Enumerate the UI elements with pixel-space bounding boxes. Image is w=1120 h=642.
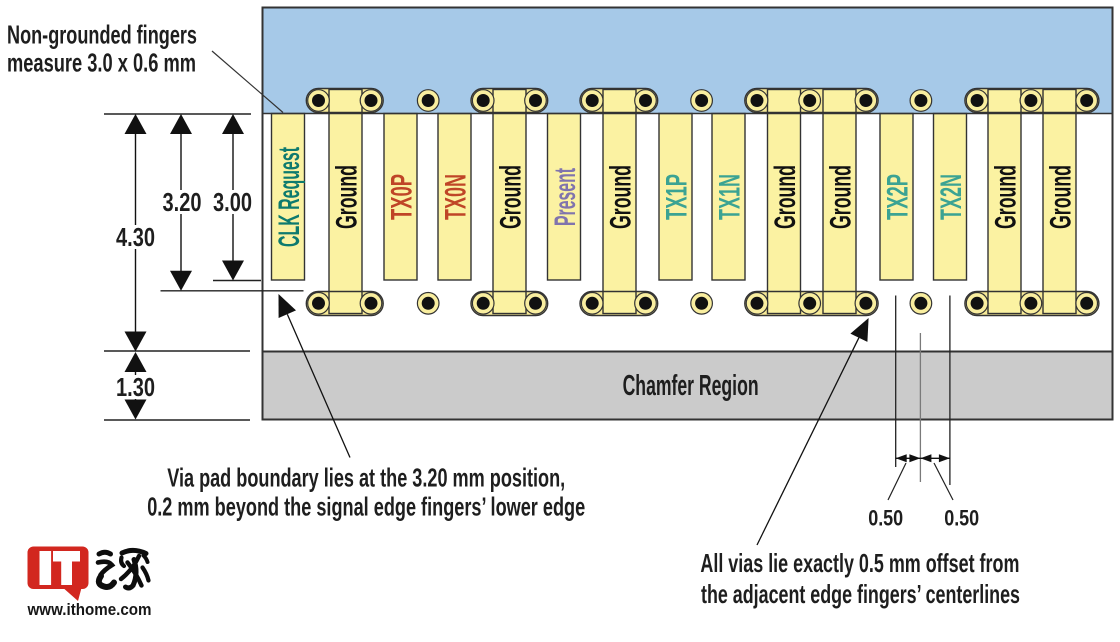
svg-text:1.30: 1.30 bbox=[116, 372, 155, 402]
svg-text:4.30: 4.30 bbox=[116, 222, 155, 252]
svg-text:TX0N: TX0N bbox=[440, 174, 473, 220]
svg-text:0.50: 0.50 bbox=[944, 506, 979, 531]
svg-text:TX2P: TX2P bbox=[882, 174, 915, 220]
svg-text:Present: Present bbox=[549, 168, 582, 226]
svg-text:3.20: 3.20 bbox=[163, 187, 202, 217]
svg-text:CLK Request: CLK Request bbox=[273, 147, 306, 247]
svg-text:TX2N: TX2N bbox=[935, 174, 968, 220]
svg-text:Ground: Ground bbox=[990, 165, 1023, 229]
svg-text:3.00: 3.00 bbox=[213, 187, 252, 217]
svg-text:Ground: Ground bbox=[825, 165, 858, 229]
svg-text:Ground: Ground bbox=[605, 165, 638, 229]
svg-text:www.ithome.com: www.ithome.com bbox=[27, 600, 152, 619]
svg-text:TX1N: TX1N bbox=[714, 174, 747, 220]
svg-text:All vias lie exactly 0.5 mm of: All vias lie exactly 0.5 mm offset from bbox=[700, 548, 1019, 578]
svg-text:0.50: 0.50 bbox=[868, 506, 903, 531]
svg-text:TX0P: TX0P bbox=[386, 174, 419, 220]
svg-text:Ground: Ground bbox=[1045, 165, 1078, 229]
svg-text:the adjacent edge fingers’ cen: the adjacent edge fingers’ centerlines bbox=[701, 579, 1020, 609]
svg-text:Chamfer Region: Chamfer Region bbox=[623, 370, 759, 402]
svg-text:0.2 mm beyond the signal edge: 0.2 mm beyond the signal edge fingers’ l… bbox=[147, 492, 585, 522]
svg-text:Ground: Ground bbox=[331, 165, 364, 229]
svg-text:TX1P: TX1P bbox=[661, 174, 694, 220]
svg-text:Ground: Ground bbox=[495, 165, 528, 229]
svg-text:Ground: Ground bbox=[769, 165, 802, 229]
svg-text:measure 3.0 x 0.6 mm: measure 3.0 x 0.6 mm bbox=[7, 48, 196, 78]
svg-text:Via pad boundary lies at the 3: Via pad boundary lies at the 3.20 mm pos… bbox=[167, 463, 565, 493]
svg-text:Non-grounded fingers: Non-grounded fingers bbox=[7, 20, 197, 50]
